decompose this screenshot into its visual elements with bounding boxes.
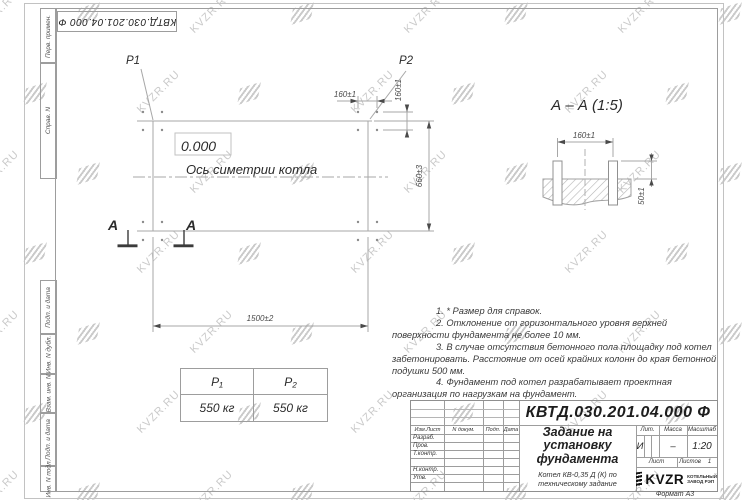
format-note: Формат А3 bbox=[640, 490, 710, 499]
load-table-header-p1: P₁ bbox=[181, 369, 254, 395]
tb-row-prov: Пров. bbox=[411, 442, 446, 450]
tb-col-podp: Подп. bbox=[483, 425, 503, 434]
kvzr-brand-text: KVZR bbox=[645, 472, 684, 487]
tb-mass-label: Масса bbox=[659, 425, 687, 435]
section-letter-right: A bbox=[185, 217, 196, 233]
dim-section-bolts: 160±1 bbox=[573, 131, 595, 140]
dim-foundation-width: 1500±2 bbox=[247, 314, 274, 323]
kvzr-logo-icon bbox=[636, 472, 642, 487]
tb-sheets-label: Листов bbox=[677, 457, 703, 467]
tb-lit-value: И bbox=[636, 435, 644, 457]
foundation-plan-outline bbox=[133, 69, 406, 231]
technical-notes: 1. * Размер для справок. 2. Отклонение о… bbox=[392, 306, 718, 401]
tb-col-data: Дата bbox=[503, 425, 519, 434]
dimension-lines bbox=[153, 96, 434, 332]
p2-point-label: P2 bbox=[399, 55, 414, 67]
note-1: 1. * Размер для справок. bbox=[392, 306, 718, 318]
load-table-header-p2: P₂ bbox=[254, 369, 327, 395]
note-4: 4. Фундамент под котел разрабатывает про… bbox=[392, 377, 718, 401]
tb-row-razrab: Разраб. bbox=[411, 434, 446, 442]
tb-row-utv: Утв. bbox=[411, 474, 446, 482]
dim-foundation-depth: 660±3 bbox=[415, 164, 424, 187]
tb-sheet-label: Лист bbox=[636, 457, 677, 467]
section-view-title: А – А (1:5) bbox=[550, 97, 623, 114]
tb-mass-value: – bbox=[659, 435, 687, 457]
drawing-sheet: KVZR.RUKVZR.RUKVZR.RUKVZR.RUKVZR.RUKVZR.… bbox=[0, 0, 750, 500]
document-designation: КВТД.030.201.04.000 Ф bbox=[519, 401, 717, 425]
anchor-bolt-right bbox=[609, 161, 618, 205]
symmetry-axis-label: Ось симетрии котла bbox=[186, 162, 317, 177]
anchor-bolt-left bbox=[553, 161, 562, 205]
load-table: P₁ P₂ 550 кг 550 кг bbox=[180, 368, 328, 422]
tb-scale-value: 1:20 bbox=[687, 435, 717, 457]
document-title: Задание на установку фундамента bbox=[519, 425, 636, 467]
tb-col-izm-list: Изм.Лист bbox=[411, 425, 444, 434]
tb-lit-label: Лит. bbox=[636, 425, 659, 435]
tb-row-tkontr: Т.контр. bbox=[411, 450, 446, 458]
note-3: 3. В случае отсутствия бетонного пола пл… bbox=[392, 342, 718, 378]
kvzr-brand-caption: КОТЕЛЬНЫЙ ЗАВОД РЭП bbox=[687, 474, 717, 484]
load-table-value-p2: 550 кг bbox=[254, 395, 327, 421]
dim-bolt-protrusion: 50±1 bbox=[637, 187, 646, 205]
title-block: Изм.Лист N докум. Подп. Дата Разраб. Про… bbox=[410, 400, 718, 492]
tb-row-nkontr: Н.контр. bbox=[411, 466, 446, 474]
p1-point-label: P1 bbox=[126, 55, 140, 67]
tb-scale-label: Масштаб bbox=[687, 425, 717, 435]
tb-row-blank bbox=[411, 458, 446, 466]
company-logo: KVZR КОТЕЛЬНЫЙ ЗАВОД РЭП bbox=[636, 467, 717, 491]
section-cut-marks bbox=[118, 230, 194, 246]
level-mark-label: 0.000 bbox=[181, 138, 216, 154]
section-letter-left: A bbox=[107, 217, 118, 233]
document-subtitle: Котел КВ-0,35 Д (К) по техническому зада… bbox=[519, 467, 636, 491]
load-table-value-p1: 550 кг bbox=[181, 395, 254, 421]
dim-bolt-spacing-h: 160±1 bbox=[334, 90, 356, 99]
tb-sheets-value: 1 bbox=[702, 457, 717, 467]
dim-bolt-spacing-v: 160±1 bbox=[394, 79, 403, 101]
tb-col-n-dokum: N докум. bbox=[444, 425, 483, 434]
note-2: 2. Отклонение от горизонтального уровня … bbox=[392, 318, 718, 342]
